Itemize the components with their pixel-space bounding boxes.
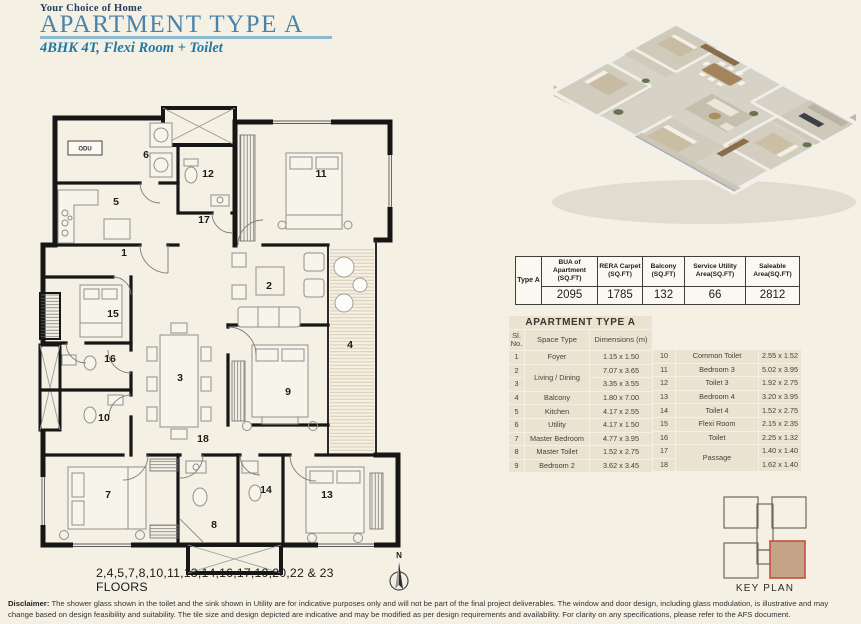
- area-summary-table: Type A BUA of Apartment (SQ.FT) RERA Car…: [515, 256, 800, 305]
- room-label-18: 18: [197, 433, 209, 445]
- odu-unit: ODU: [68, 141, 102, 155]
- room-label-7: 7: [105, 489, 111, 501]
- room-label-10: 10: [98, 412, 110, 424]
- area-col-rera: RERA Carpet (SQ.FT): [598, 257, 643, 287]
- area-col-saleable: Saleable Area(SQ.FT): [746, 257, 800, 287]
- compass-icon: N: [382, 548, 416, 600]
- area-val-saleable: 2812: [746, 286, 800, 304]
- room-label-17: 17: [198, 214, 210, 226]
- table-row: 11Bedroom 35.02 x 3.95: [653, 364, 801, 377]
- washer-units: [150, 123, 172, 177]
- room-label-12: 12: [202, 168, 214, 180]
- room-label-5: 5: [113, 196, 119, 208]
- shaft-left: [40, 293, 60, 430]
- area-col-balcony: Balcony (SQ.FT): [643, 257, 685, 287]
- key-plan-label: KEY PLAN: [736, 583, 794, 594]
- room-label-16: 16: [104, 353, 116, 365]
- floors-note: 2,4,5,7,8,10,11,13,14,16,17,19,20,22 & 2…: [96, 566, 376, 594]
- room-label-15: 15: [107, 308, 119, 320]
- table-row: 14Toilet 41.52 x 2.75: [653, 404, 801, 417]
- dim-table-title: APARTMENT TYPE A: [509, 316, 652, 329]
- room-label-6: 6: [143, 149, 149, 161]
- table-row: 1Foyer1.15 x 1.50: [509, 351, 652, 364]
- room-label-9: 9: [285, 386, 291, 398]
- table-row: 10Common Toilet2.55 x 1.52: [653, 350, 801, 363]
- table-row: 7Master Bedroom4.77 x 3.95: [509, 433, 652, 446]
- room-label-14: 14: [260, 484, 272, 496]
- page-subtitle: 4BHK 4T, Flexi Room + Toilet: [40, 40, 223, 57]
- shaft-top: [163, 108, 235, 145]
- key-plan-highlight: [770, 541, 805, 578]
- room-label-11: 11: [315, 168, 326, 180]
- floor-plan: ODU: [28, 95, 418, 577]
- sofa-set: [232, 253, 324, 327]
- room-label-3: 3: [177, 372, 183, 384]
- room-label-4: 4: [347, 339, 353, 351]
- bed-bedroom2: [232, 345, 318, 431]
- bed-bedroom3: [240, 135, 352, 241]
- table-row: 9Bedroom 23.62 x 3.45: [509, 460, 652, 473]
- disclaimer-label: Disclaimer:: [8, 599, 49, 608]
- area-row-label: Type A: [516, 257, 542, 305]
- page-title: APARTMENT TYPE A: [40, 11, 304, 39]
- area-col-bua: BUA of Apartment (SQ.FT): [542, 257, 598, 287]
- dimension-table-left: APARTMENT TYPE A Sl. No. Space Type Dime…: [508, 315, 653, 473]
- title-underline: [40, 36, 332, 39]
- dimension-table-right: 10Common Toilet2.55 x 1.52 11Bedroom 35.…: [652, 349, 802, 472]
- svg-text:ODU: ODU: [78, 147, 91, 153]
- kitchen-counter: [58, 190, 130, 243]
- room-label-8: 8: [211, 519, 217, 531]
- table-row: 8Master Toilet1.52 x 2.75: [509, 446, 652, 459]
- area-val-rera: 1785: [598, 286, 643, 304]
- room-label-2: 2: [266, 280, 272, 292]
- table-row: 16Toilet2.25 x 1.32: [653, 432, 801, 445]
- area-val-bua: 2095: [542, 286, 598, 304]
- compass-n-label: N: [396, 551, 402, 560]
- bed-master: [60, 459, 179, 540]
- table-row: 12Toilet 31.92 x 2.75: [653, 377, 801, 390]
- key-plan: KEY PLAN: [712, 494, 822, 594]
- toilet4-fixtures: [242, 461, 261, 501]
- toilet3-fixtures: [184, 159, 229, 206]
- table-row: 6Utility4.17 x 1.50: [509, 419, 652, 432]
- area-val-balcony: 132: [643, 286, 685, 304]
- table-row: 13Bedroom 43.20 x 3.95: [653, 391, 801, 404]
- table-row: 17Passage1.40 x 1.40: [653, 445, 801, 458]
- dim-col-sl: Sl. No.: [509, 330, 524, 350]
- table-row: 2Living / Dining7.07 x 3.65: [509, 365, 652, 378]
- brochure-page: Your Choice of Home APARTMENT TYPE A 4BH…: [0, 0, 861, 624]
- disclaimer-text: The shower glass shown in the toilet and…: [8, 599, 828, 619]
- bed-bedroom4: [306, 467, 383, 543]
- disclaimer: Disclaimer: The shower glass shown in th…: [8, 599, 854, 621]
- table-row: 5Kitchen4.17 x 2.55: [509, 405, 652, 418]
- room-label-1: 1: [121, 247, 127, 259]
- room-label-13: 13: [321, 489, 333, 501]
- dim-col-dim: Dimensions (m): [590, 330, 652, 350]
- toilet16-fixtures: [62, 355, 96, 370]
- table-row: 4Balcony1.80 x 7.00: [509, 392, 652, 405]
- dim-col-space: Space Type: [525, 330, 589, 350]
- area-val-service: 66: [685, 286, 746, 304]
- isometric-render: [488, 6, 860, 244]
- table-row: 15Flexi Room2.15 x 2.35: [653, 418, 801, 431]
- area-col-service: Service Utility Area(SQ.FT): [685, 257, 746, 287]
